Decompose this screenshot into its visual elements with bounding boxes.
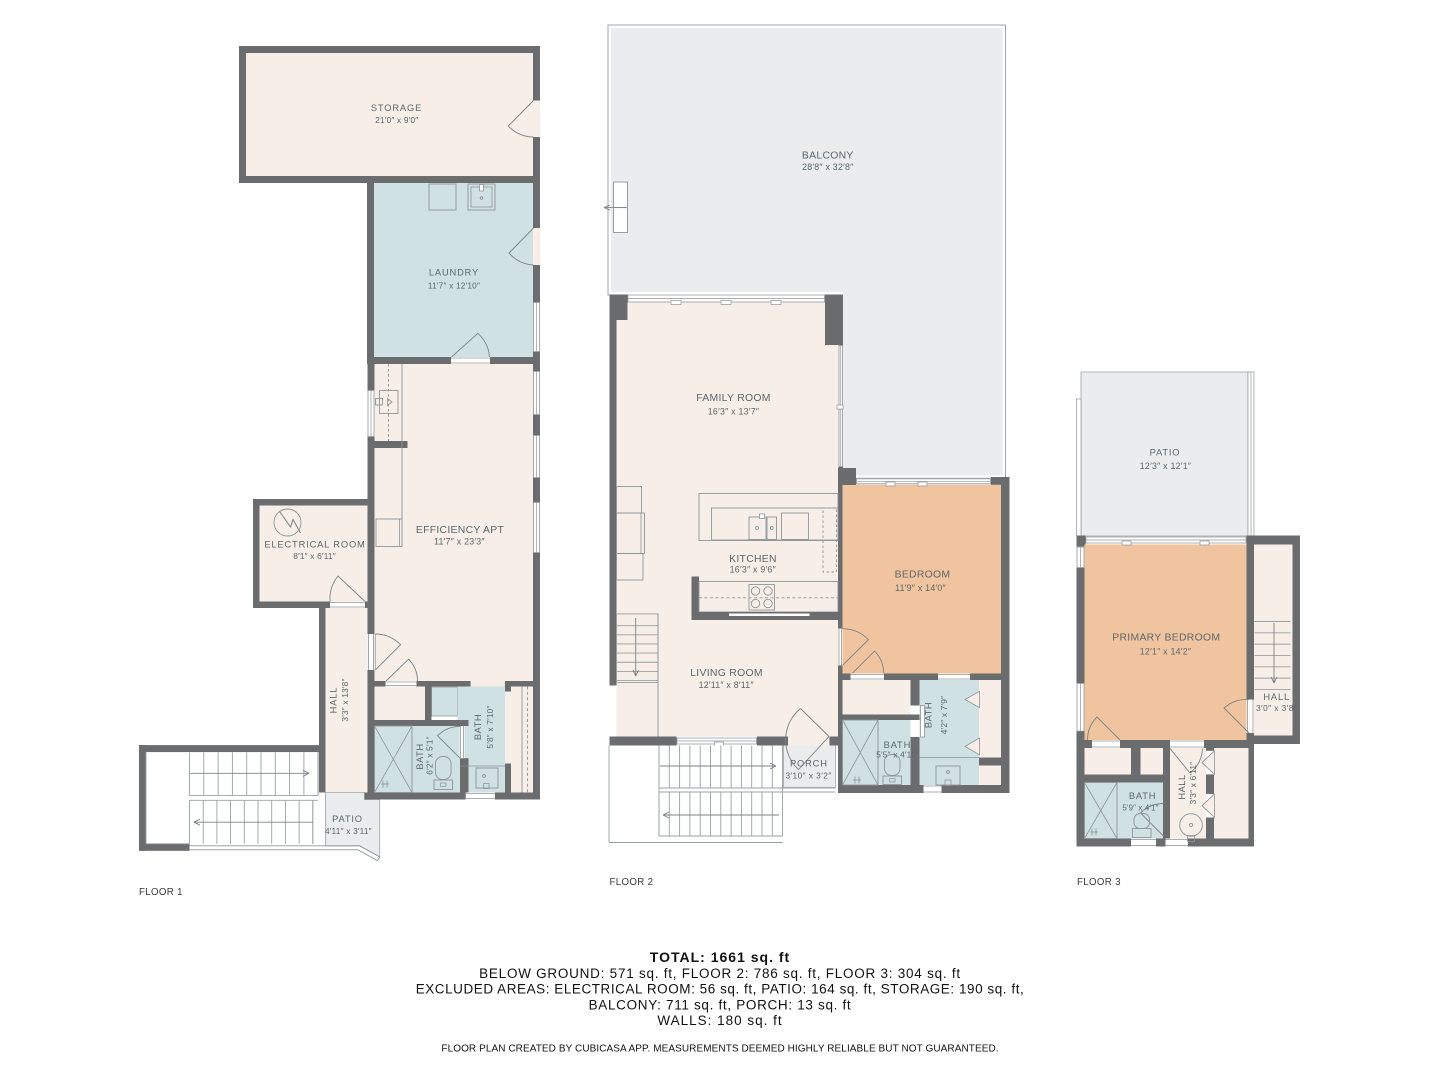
svg-text:FLOOR 2: FLOOR 2	[610, 877, 654, 888]
svg-text:STORAGE: STORAGE	[371, 103, 422, 113]
svg-text:8′1″ x 6′11″: 8′1″ x 6′11″	[293, 551, 336, 561]
svg-text:21′0″ x 9′0″: 21′0″ x 9′0″	[375, 115, 418, 125]
svg-text:FLOOR PLAN CREATED BY CUBICASA: FLOOR PLAN CREATED BY CUBICASA APP. MEAS…	[441, 1043, 998, 1054]
svg-text:PORCH: PORCH	[790, 759, 828, 769]
svg-text:LAUNDRY: LAUNDRY	[429, 268, 479, 278]
svg-text:28′8″ x 32′8″: 28′8″ x 32′8″	[802, 162, 853, 172]
svg-text:16′3″ x 9′6″: 16′3″ x 9′6″	[730, 565, 776, 575]
svg-text:PATIO: PATIO	[1150, 448, 1181, 458]
svg-text:BATH: BATH	[884, 740, 912, 750]
svg-text:6′2″ x 5′1″: 6′2″ x 5′1″	[425, 736, 435, 774]
svg-text:BATH: BATH	[415, 743, 425, 769]
svg-text:PATIO: PATIO	[332, 814, 363, 824]
svg-text:BATH: BATH	[924, 702, 934, 728]
svg-text:ELECTRICAL ROOM: ELECTRICAL ROOM	[264, 540, 365, 550]
svg-text:HALL: HALL	[1177, 774, 1187, 799]
svg-text:4′11″ x 3′11″: 4′11″ x 3′11″	[325, 826, 372, 836]
svg-text:3′0″ x 3′8″: 3′0″ x 3′8″	[1256, 703, 1297, 713]
svg-text:BALCONY: BALCONY	[802, 150, 854, 161]
svg-text:5′5″ x 4′11″: 5′5″ x 4′11″	[876, 750, 919, 760]
svg-text:11′7″ x 12′10″: 11′7″ x 12′10″	[428, 281, 480, 291]
svg-text:FAMILY ROOM: FAMILY ROOM	[696, 393, 771, 404]
svg-text:3′3″ x 6′11″: 3′3″ x 6′11″	[1188, 762, 1198, 805]
svg-text:12′3″ x 12′1″: 12′3″ x 12′1″	[1140, 461, 1191, 471]
svg-text:BALCONY: 711 sq. ft, PORCH: 13: BALCONY: 711 sq. ft, PORCH: 13 sq. ft	[589, 997, 852, 1012]
svg-text:EFFICIENCY APT: EFFICIENCY APT	[416, 525, 505, 536]
svg-text:5′8″ x 7′10″: 5′8″ x 7′10″	[485, 705, 495, 748]
svg-text:HALL: HALL	[329, 687, 339, 714]
svg-text:WALLS: 180 sq. ft: WALLS: 180 sq. ft	[657, 1013, 782, 1028]
svg-text:3′3″ x 13′8″: 3′3″ x 13′8″	[340, 678, 350, 721]
svg-text:BEDROOM: BEDROOM	[895, 570, 951, 581]
svg-text:BATH: BATH	[1129, 791, 1157, 801]
svg-text:FLOOR 1: FLOOR 1	[139, 887, 183, 898]
svg-text:FLOOR 3: FLOOR 3	[1077, 877, 1121, 888]
svg-text:BELOW GROUND: 571 sq. ft, FLOO: BELOW GROUND: 571 sq. ft, FLOOR 2: 786 s…	[479, 966, 961, 981]
svg-text:11′9″ x 14′0″: 11′9″ x 14′0″	[895, 583, 946, 593]
svg-text:12′1″ x 14′2″: 12′1″ x 14′2″	[1140, 647, 1191, 657]
svg-text:HALL: HALL	[1263, 692, 1290, 702]
svg-text:4′2″ x 7′9″: 4′2″ x 7′9″	[939, 696, 949, 734]
svg-text:EXCLUDED AREAS: ELECTRICAL ROO: EXCLUDED AREAS: ELECTRICAL ROOM: 56 sq. …	[416, 982, 1025, 997]
svg-text:3′10″ x 3′2″: 3′10″ x 3′2″	[785, 771, 831, 781]
svg-text:TOTAL: 1661 sq. ft: TOTAL: 1661 sq. ft	[650, 949, 790, 965]
svg-text:BATH: BATH	[473, 714, 483, 740]
svg-text:KITCHEN: KITCHEN	[729, 554, 777, 565]
svg-text:16′3″ x 13′7″: 16′3″ x 13′7″	[708, 407, 759, 417]
svg-text:5′9″ x 4′1″: 5′9″ x 4′1″	[1122, 804, 1158, 813]
svg-text:PRIMARY BEDROOM: PRIMARY BEDROOM	[1112, 633, 1220, 644]
svg-text:11′7″ x 23′3″: 11′7″ x 23′3″	[434, 537, 485, 547]
svg-text:12′11″ x 8′11″: 12′11″ x 8′11″	[699, 680, 754, 690]
svg-text:LIVING ROOM: LIVING ROOM	[690, 668, 763, 679]
